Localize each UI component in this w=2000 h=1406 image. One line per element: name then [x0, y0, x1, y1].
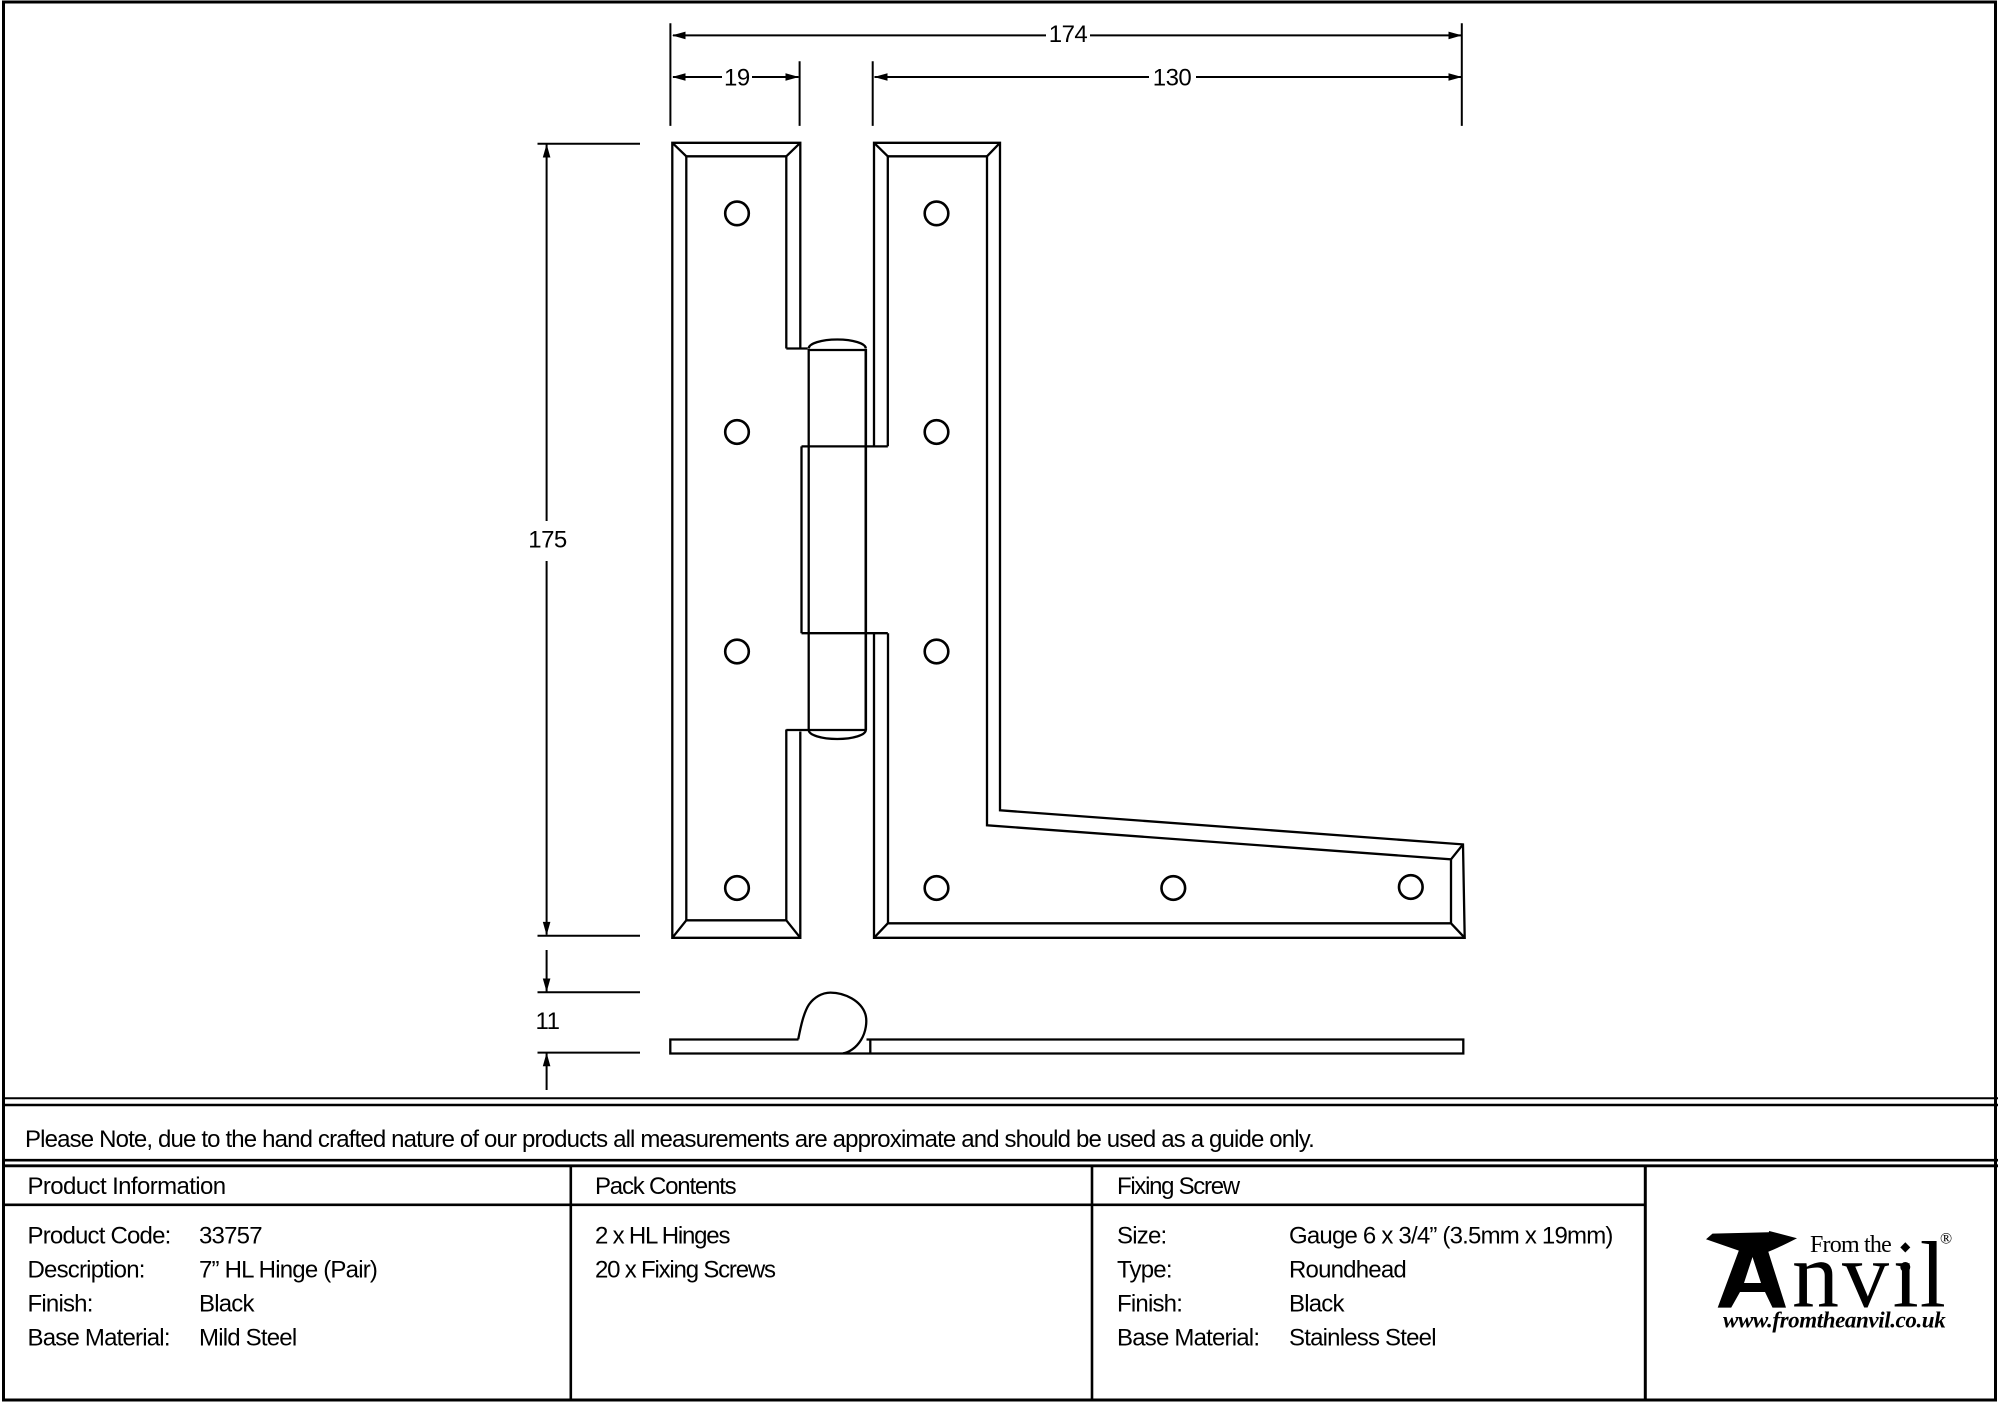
svg-text:www.fromtheanvil.co.uk: www.fromtheanvil.co.uk: [1723, 1308, 1946, 1333]
svg-text:20 x Fixing Screws: 20 x Fixing Screws: [595, 1257, 776, 1284]
svg-text:175: 175: [528, 526, 567, 553]
svg-text:®: ®: [1940, 1231, 1952, 1248]
svg-text:19: 19: [724, 65, 750, 92]
svg-text:Finish:: Finish:: [1117, 1291, 1182, 1318]
svg-text:174: 174: [1049, 21, 1088, 48]
svg-text:Product Code:: Product Code:: [28, 1223, 171, 1250]
svg-text:Product Information: Product Information: [28, 1173, 226, 1200]
svg-text:Type:: Type:: [1117, 1257, 1172, 1284]
svg-text:7” HL Hinge (Pair): 7” HL Hinge (Pair): [199, 1257, 377, 1284]
svg-text:Black: Black: [199, 1291, 255, 1318]
svg-text:Stainless Steel: Stainless Steel: [1289, 1325, 1436, 1352]
svg-text:130: 130: [1153, 65, 1192, 92]
svg-text:Base Material:: Base Material:: [28, 1325, 170, 1352]
svg-text:33757: 33757: [199, 1223, 262, 1250]
svg-text:11: 11: [536, 1008, 560, 1035]
svg-text:2 x HL Hinges: 2 x HL Hinges: [595, 1223, 730, 1250]
svg-text:Roundhead: Roundhead: [1289, 1257, 1406, 1284]
svg-text:Base Material:: Base Material:: [1117, 1325, 1259, 1352]
svg-text:Description:: Description:: [28, 1257, 145, 1284]
svg-text:Gauge 6 x 3/4” (3.5mm x 19mm): Gauge 6 x 3/4” (3.5mm x 19mm): [1289, 1223, 1613, 1250]
svg-text:Pack Contents: Pack Contents: [595, 1173, 737, 1200]
svg-text:Black: Black: [1289, 1291, 1345, 1318]
svg-text:Please Note, due to the hand c: Please Note, due to the hand crafted nat…: [25, 1126, 1314, 1153]
svg-text:Size:: Size:: [1117, 1223, 1166, 1250]
svg-text:Fixing Screw: Fixing Screw: [1117, 1173, 1241, 1200]
svg-text:Finish:: Finish:: [28, 1291, 93, 1318]
svg-text:Mild Steel: Mild Steel: [199, 1325, 296, 1352]
